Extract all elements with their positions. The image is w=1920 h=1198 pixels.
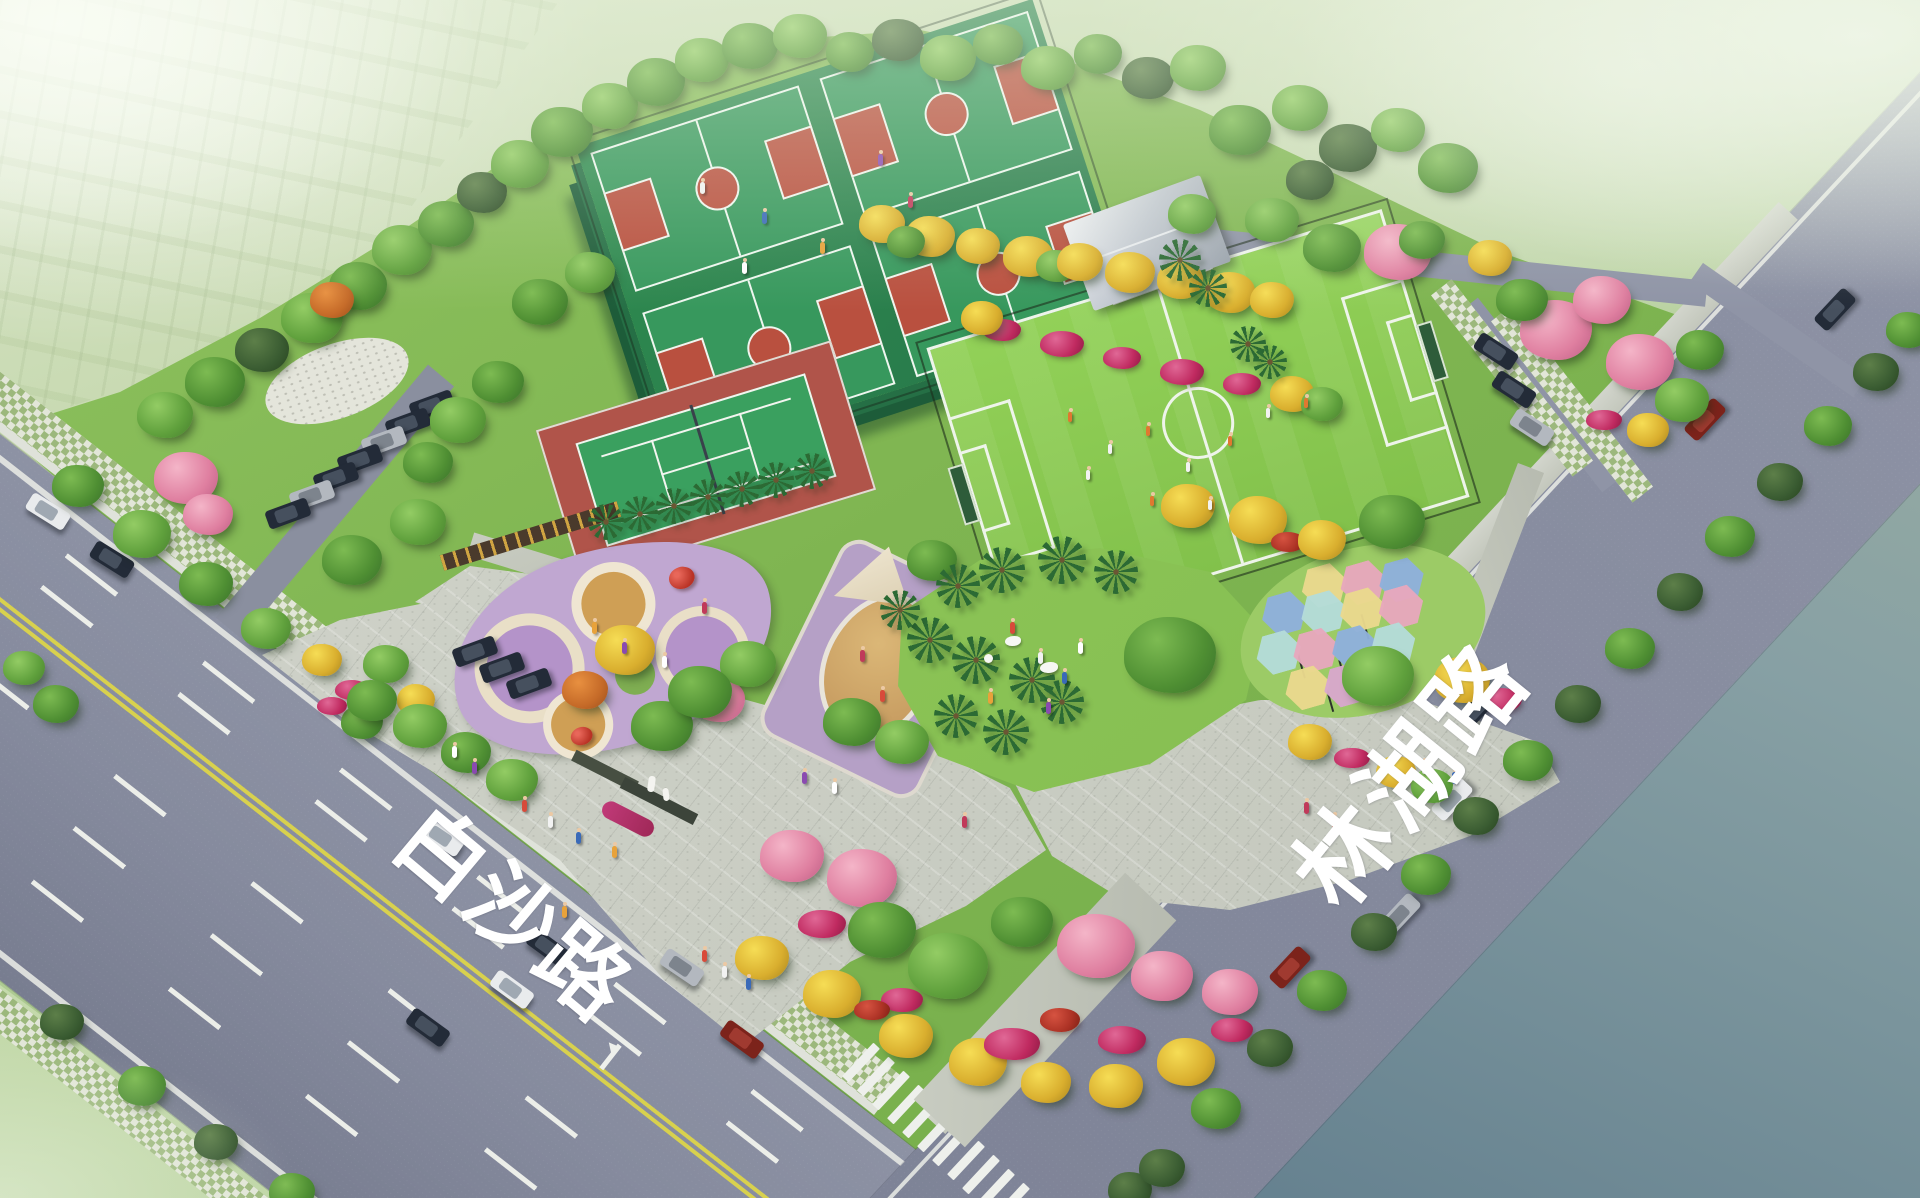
tree — [1298, 520, 1346, 559]
person — [452, 746, 457, 758]
soccer-player — [1108, 444, 1112, 454]
tree — [1247, 1029, 1293, 1067]
flower-bed — [1160, 359, 1204, 385]
person — [1062, 672, 1067, 684]
person — [746, 978, 751, 990]
key-area — [884, 263, 951, 337]
tree — [441, 732, 491, 773]
soccer-player — [1266, 408, 1270, 418]
tree — [1655, 378, 1709, 422]
person — [702, 950, 707, 962]
key-area — [832, 103, 899, 177]
person — [548, 816, 553, 828]
tree — [1496, 279, 1548, 322]
tree — [722, 23, 778, 69]
soccer-player — [1150, 496, 1154, 506]
soccer-player — [1086, 470, 1090, 480]
palm-tree — [1189, 269, 1227, 307]
tree — [1250, 282, 1294, 318]
tree — [1804, 406, 1852, 445]
person — [1078, 642, 1083, 654]
soccer-player — [1186, 462, 1190, 472]
palm-tree — [983, 709, 1029, 755]
tree — [1627, 413, 1669, 447]
flower-bed — [1098, 1026, 1146, 1054]
person — [700, 182, 705, 194]
tree — [1057, 243, 1103, 281]
flower-bed — [317, 697, 347, 714]
palm-tree — [588, 504, 624, 540]
tree — [194, 1124, 238, 1160]
tree — [1157, 1038, 1215, 1086]
sphere-sculpture — [984, 654, 993, 663]
person — [1010, 622, 1015, 634]
tree — [1124, 617, 1216, 692]
tree — [1168, 194, 1216, 233]
tree — [403, 442, 453, 483]
palm-tree — [622, 496, 658, 532]
tree — [848, 902, 916, 958]
tree — [1297, 970, 1347, 1011]
flower-bed — [1586, 410, 1622, 431]
flower-bed — [1040, 331, 1084, 357]
tree — [565, 252, 615, 293]
tree — [1605, 628, 1655, 669]
tree — [185, 357, 245, 406]
person — [802, 772, 807, 784]
tree — [675, 38, 729, 82]
tree — [3, 651, 45, 685]
tree — [973, 24, 1023, 65]
tree — [1057, 914, 1135, 978]
tree — [1371, 108, 1425, 152]
tree — [390, 499, 446, 545]
palm-tree — [934, 694, 978, 738]
soccer-player — [1228, 436, 1232, 446]
palm-tree — [1253, 345, 1287, 379]
person — [762, 212, 767, 224]
palm-tree — [1038, 536, 1086, 584]
person — [722, 966, 727, 978]
tree — [1021, 1062, 1071, 1103]
tree — [1573, 276, 1631, 324]
tree — [1418, 143, 1478, 192]
tree — [183, 494, 233, 535]
tree — [1161, 484, 1215, 528]
person — [878, 154, 883, 166]
tree — [430, 397, 486, 443]
tree — [393, 704, 447, 748]
tree — [1676, 330, 1724, 369]
person — [576, 832, 581, 844]
tree — [40, 1004, 84, 1040]
tree — [137, 392, 193, 438]
person — [962, 816, 967, 828]
tree — [735, 936, 789, 980]
person — [1038, 652, 1043, 664]
tree — [956, 228, 1000, 264]
tree — [1122, 57, 1174, 100]
tree — [875, 720, 929, 764]
person — [1046, 702, 1051, 714]
tree — [1757, 463, 1803, 501]
tree — [920, 35, 976, 81]
tree — [347, 680, 397, 721]
tree — [1074, 34, 1122, 73]
tree — [991, 897, 1053, 948]
tree — [52, 465, 104, 508]
palm-tree — [936, 564, 980, 608]
tree — [826, 32, 874, 71]
flower-bed — [1211, 1018, 1253, 1042]
play-dome — [666, 564, 697, 593]
flower-bed — [1040, 1008, 1080, 1031]
tree — [1359, 495, 1425, 549]
center-circle — [918, 86, 973, 141]
singles-line — [601, 397, 791, 457]
person — [702, 602, 707, 614]
tree — [241, 608, 291, 649]
flower-bed — [1223, 373, 1261, 395]
tree — [363, 645, 409, 683]
tree — [887, 226, 925, 257]
tree — [512, 279, 568, 325]
tree — [823, 698, 881, 746]
tree — [1288, 724, 1332, 760]
tree — [1089, 1064, 1143, 1108]
tree — [1705, 516, 1755, 557]
white-sculpture — [662, 788, 669, 802]
tree — [562, 671, 608, 709]
tree — [1319, 124, 1377, 172]
tree — [1853, 353, 1899, 391]
tree — [827, 849, 897, 906]
soccer-player — [1304, 398, 1308, 408]
palm-tree — [1094, 550, 1138, 594]
palm-tree — [979, 547, 1025, 593]
tree — [1139, 1149, 1185, 1187]
tree — [1131, 951, 1193, 1002]
tree — [1021, 46, 1075, 90]
tree — [879, 1014, 933, 1058]
flower-bed — [1103, 347, 1141, 369]
tree — [1606, 334, 1674, 390]
person — [662, 656, 667, 668]
tree — [1468, 240, 1512, 276]
tree — [908, 933, 988, 999]
palm-tree — [690, 479, 726, 515]
flower-bed — [984, 1028, 1040, 1060]
tree — [1245, 198, 1299, 242]
key-area — [764, 125, 831, 199]
person — [742, 262, 747, 274]
palm-tree — [758, 462, 794, 498]
tree — [235, 328, 289, 372]
person — [908, 196, 913, 208]
tree — [1191, 1088, 1241, 1129]
tree — [1170, 45, 1226, 91]
tree — [803, 970, 861, 1018]
tree — [1399, 221, 1445, 259]
tree — [472, 361, 524, 404]
tree — [1886, 312, 1920, 348]
person — [860, 650, 865, 662]
tree — [760, 830, 824, 882]
key-area — [603, 178, 670, 252]
tree — [486, 759, 538, 802]
center-circle — [689, 161, 744, 216]
tree — [302, 644, 342, 677]
tree — [1555, 685, 1601, 723]
tree — [33, 685, 79, 723]
tree — [322, 535, 382, 584]
person — [880, 690, 885, 702]
park-masterplan-aerial-rendering: 白沙路 林湖路 — [0, 0, 1920, 1198]
tree — [1657, 573, 1703, 611]
palm-tree — [656, 488, 692, 524]
tree — [1286, 160, 1334, 199]
soccer-player — [1146, 426, 1150, 436]
person — [988, 692, 993, 704]
tree — [310, 282, 354, 318]
person — [472, 762, 477, 774]
tree — [668, 666, 732, 718]
tree — [1105, 252, 1155, 293]
tree — [1209, 105, 1271, 156]
tree — [1202, 969, 1258, 1015]
flower-bed — [854, 1000, 890, 1021]
flower-bed — [798, 910, 846, 938]
palm-tree — [880, 590, 920, 630]
palm-tree — [794, 453, 830, 489]
person — [592, 622, 597, 634]
soccer-player — [1208, 500, 1212, 510]
tree — [179, 562, 233, 606]
person — [622, 642, 627, 654]
tree — [773, 14, 827, 58]
palm-tree — [724, 471, 760, 507]
tree — [961, 301, 1003, 335]
tree — [113, 510, 171, 558]
person — [612, 846, 617, 858]
tree — [872, 19, 924, 62]
tree — [118, 1066, 166, 1105]
soccer-player — [1068, 412, 1072, 422]
palm-tree — [952, 636, 1000, 684]
person — [832, 782, 837, 794]
person — [522, 800, 527, 812]
tree — [1303, 224, 1361, 272]
person — [820, 242, 825, 254]
tree — [1272, 85, 1328, 131]
